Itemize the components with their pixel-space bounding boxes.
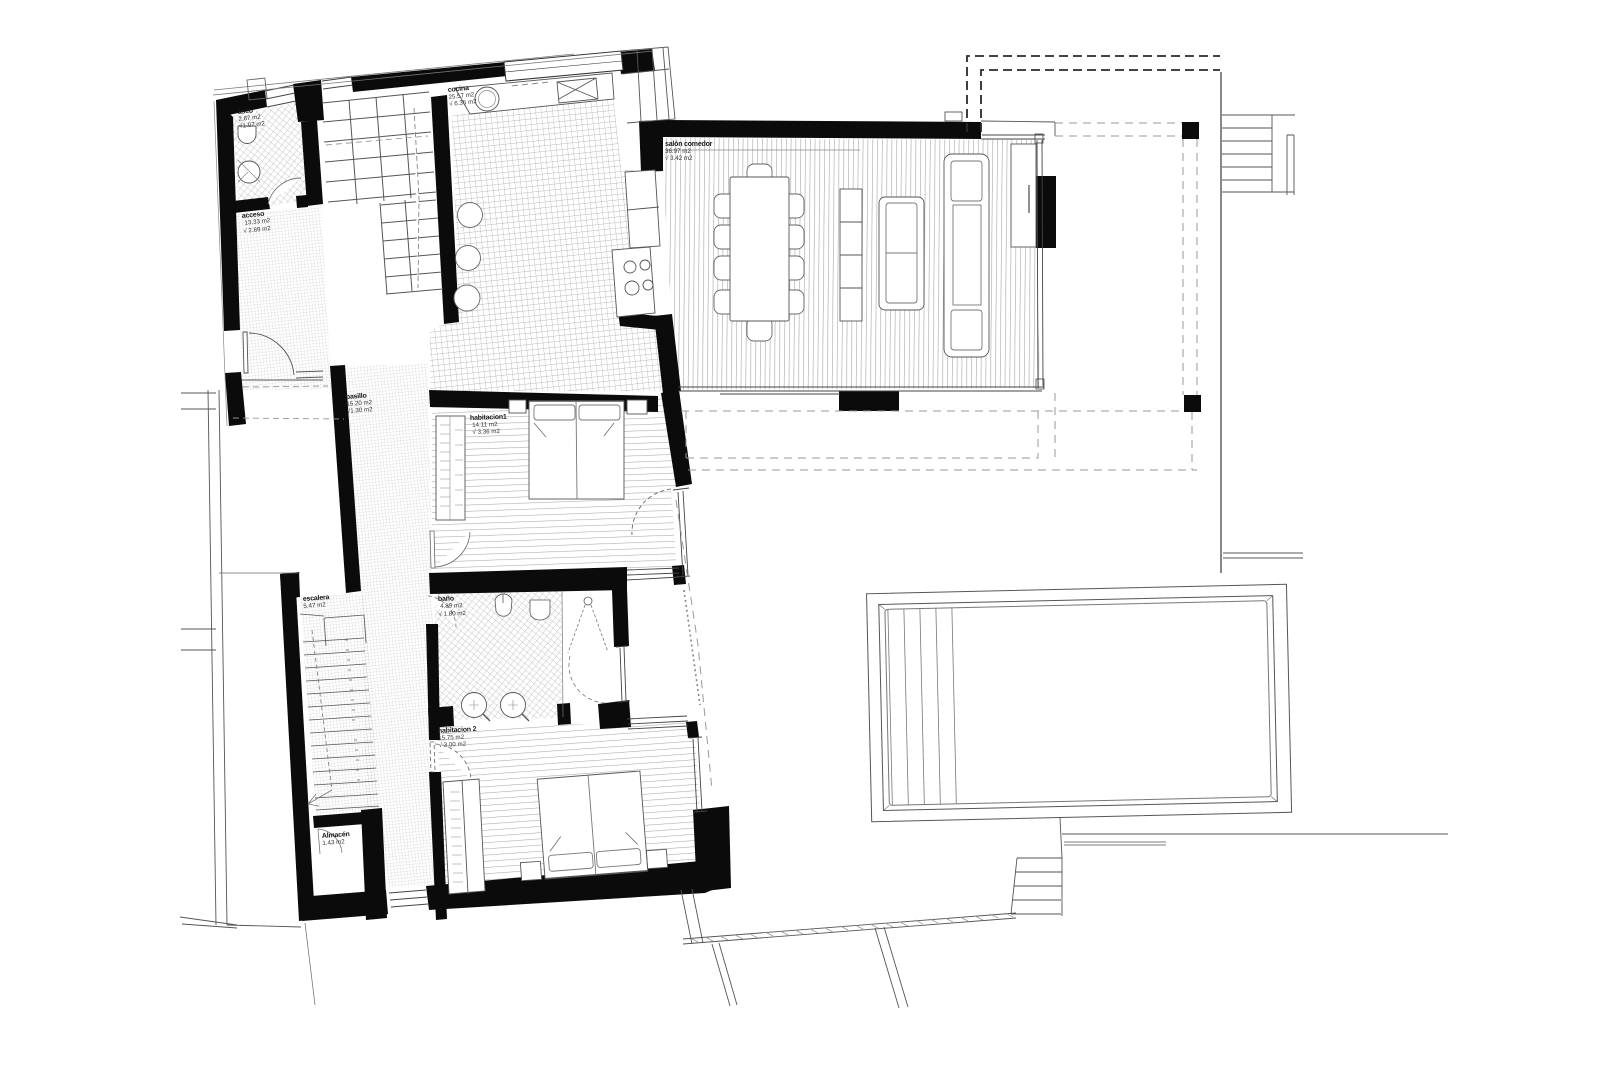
svg-text:36.97 m2: 36.97 m2	[665, 148, 691, 155]
svg-text:salón comedor: salón comedor	[665, 141, 713, 148]
svg-text:√ 3.42 m2: √ 3.42 m2	[665, 155, 693, 162]
svg-text:√ 3.36 m2: √ 3.36 m2	[472, 428, 500, 436]
svg-text:√ 3.00 m2: √ 3.00 m2	[438, 741, 466, 749]
svg-text:√ 1.80 m2: √ 1.80 m2	[438, 610, 466, 618]
svg-text:4.89 m2: 4.89 m2	[440, 602, 463, 610]
